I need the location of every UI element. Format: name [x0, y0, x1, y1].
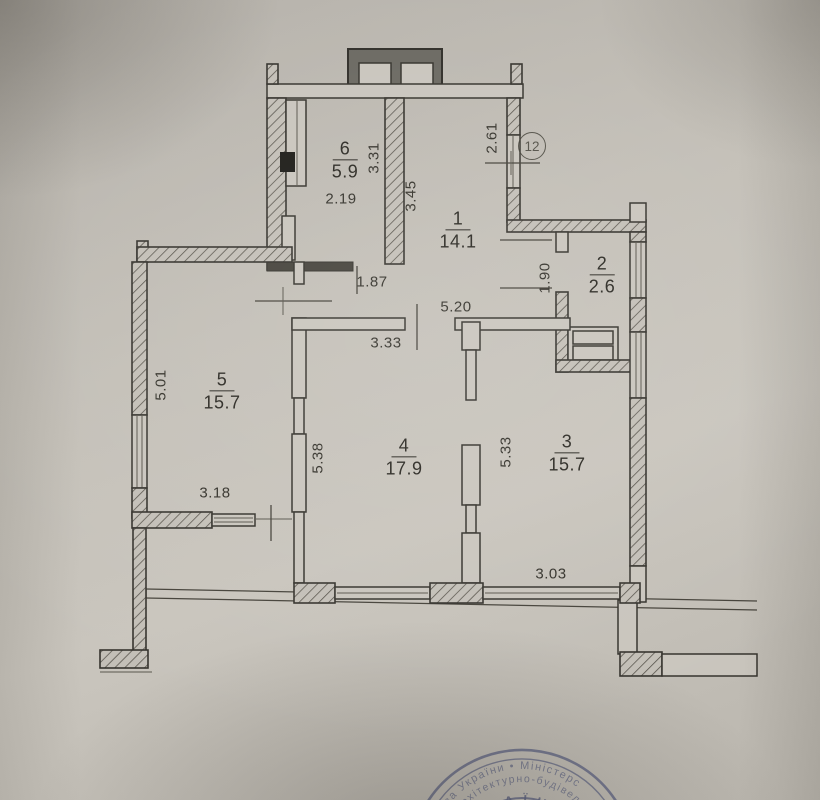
room-label-6: 6 5.9	[332, 138, 359, 181]
dim-2-61: 2.61	[484, 122, 501, 153]
room-area: 17.9	[385, 458, 422, 479]
room-number: 3	[555, 431, 580, 453]
room-label-5: 5 15.7	[203, 369, 240, 412]
floor-level-number: 12	[524, 139, 539, 154]
plan-labels: 6 5.9 1 14.1 2 2.6 5 15.7 4 17.9 3 15.7 …	[0, 0, 820, 800]
room-number: 6	[333, 138, 358, 160]
dim-5-33: 5.33	[498, 436, 515, 467]
room-label-4: 4 17.9	[385, 435, 422, 478]
dim-5-20: 5.20	[440, 299, 471, 316]
dim-1-90: 1.90	[537, 262, 554, 293]
floor-level-marker: 12	[518, 132, 546, 160]
room-number: 1	[446, 208, 471, 230]
room-area: 15.7	[548, 454, 585, 475]
room-label-3: 3 15.7	[548, 431, 585, 474]
room-number: 4	[392, 435, 417, 457]
dim-2-19: 2.19	[325, 191, 356, 208]
dim-5-01: 5.01	[153, 369, 170, 400]
room-number: 5	[210, 369, 235, 391]
dim-3-18: 3.18	[199, 485, 230, 502]
dim-3-31: 3.31	[366, 142, 383, 173]
room-area: 2.6	[589, 276, 616, 297]
dim-3-33: 3.33	[370, 335, 401, 352]
room-area: 15.7	[203, 392, 240, 413]
room-label-1: 1 14.1	[439, 208, 476, 251]
dim-5-38: 5.38	[310, 442, 327, 473]
room-area: 5.9	[332, 161, 359, 182]
dim-3-03: 3.03	[535, 566, 566, 583]
floorplan-photo: ства України • Міністерс ційна архітекту…	[0, 0, 820, 800]
room-label-2: 2 2.6	[589, 253, 616, 296]
dim-1-87: 1.87	[356, 274, 387, 291]
room-area: 14.1	[439, 231, 476, 252]
room-number: 2	[590, 253, 615, 275]
dim-3-45: 3.45	[403, 180, 420, 211]
